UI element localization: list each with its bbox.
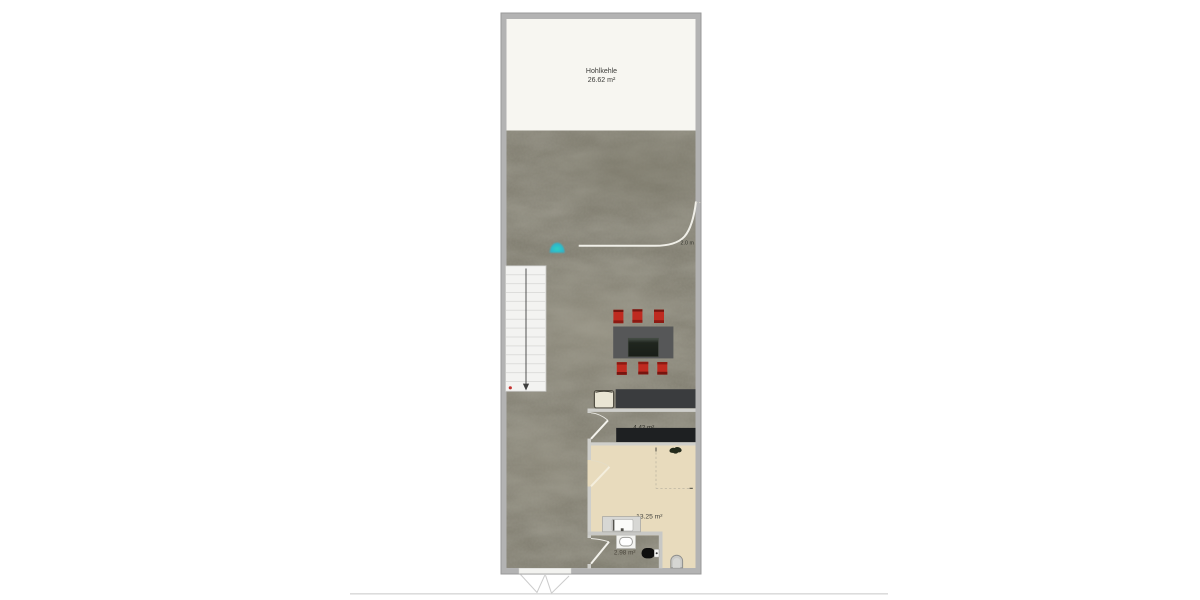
svg-text:Hohlkehle: Hohlkehle (586, 68, 617, 75)
svg-text:2.98 m²: 2.98 m² (614, 550, 636, 557)
svg-text:26.62 m²: 26.62 m² (588, 77, 616, 84)
svg-text:2.0 m: 2.0 m (681, 240, 695, 246)
